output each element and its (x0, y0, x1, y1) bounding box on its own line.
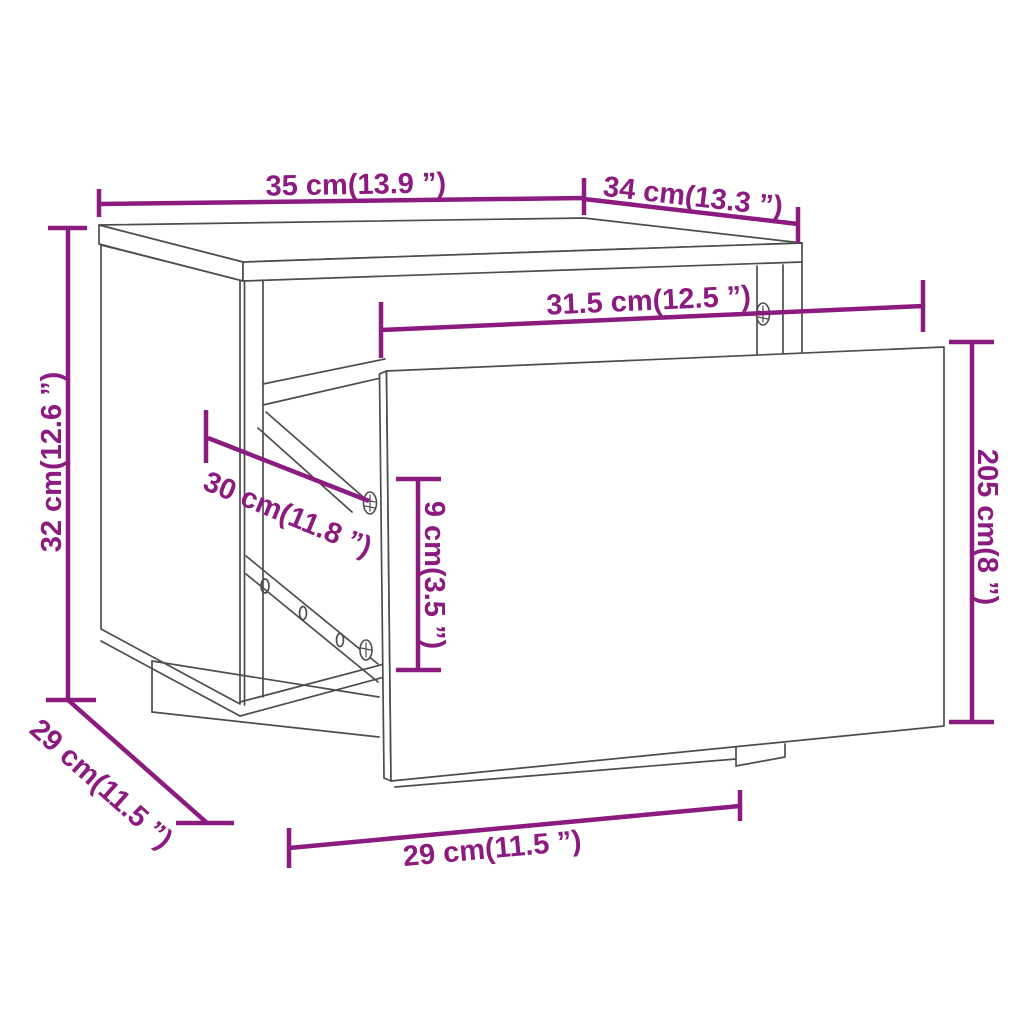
slide-hook-2 (300, 607, 307, 620)
dim-label-top-depth: 34 cm(13.3 ”) (602, 171, 785, 223)
dim-label-top-width: 35 cm(13.9 ”) (265, 167, 446, 202)
slide-hook-3 (337, 634, 344, 647)
plinth-bottom-edge (152, 712, 379, 737)
shelf-front-bottom-edge (263, 377, 385, 405)
drawer-front-face (387, 347, 945, 781)
dim-label-overall-height: 32 cm(12.6 ”) (36, 372, 68, 553)
dimension-diagram: 35 cm(13.9 ”) 34 cm(13.3 ”) 32 cm(12.6 ”… (0, 0, 1024, 1024)
dim-label-drawer-box-height: 9 cm(3.5 ”) (418, 501, 450, 649)
drawer-slide-lower-rail (246, 556, 378, 664)
dim-label-drawer-front-height: 205 cm(8 ”) (971, 449, 1003, 605)
shelf-front-top-edge (263, 359, 385, 384)
drawer-slide-lower-bracket (246, 574, 378, 682)
diagram-stage: 35 cm(13.9 ”) 34 cm(13.3 ”) 32 cm(12.6 ”… (0, 0, 1024, 1024)
dim-label-base-width: 29 cm(11.5 ”) (402, 825, 583, 873)
dim-label-base-depth: 29 cm(11.5 ”) (23, 713, 178, 856)
plinth-top-edge (152, 661, 379, 697)
drawer-slide-upper-rail (266, 412, 370, 503)
plinth-right-end (736, 744, 785, 766)
